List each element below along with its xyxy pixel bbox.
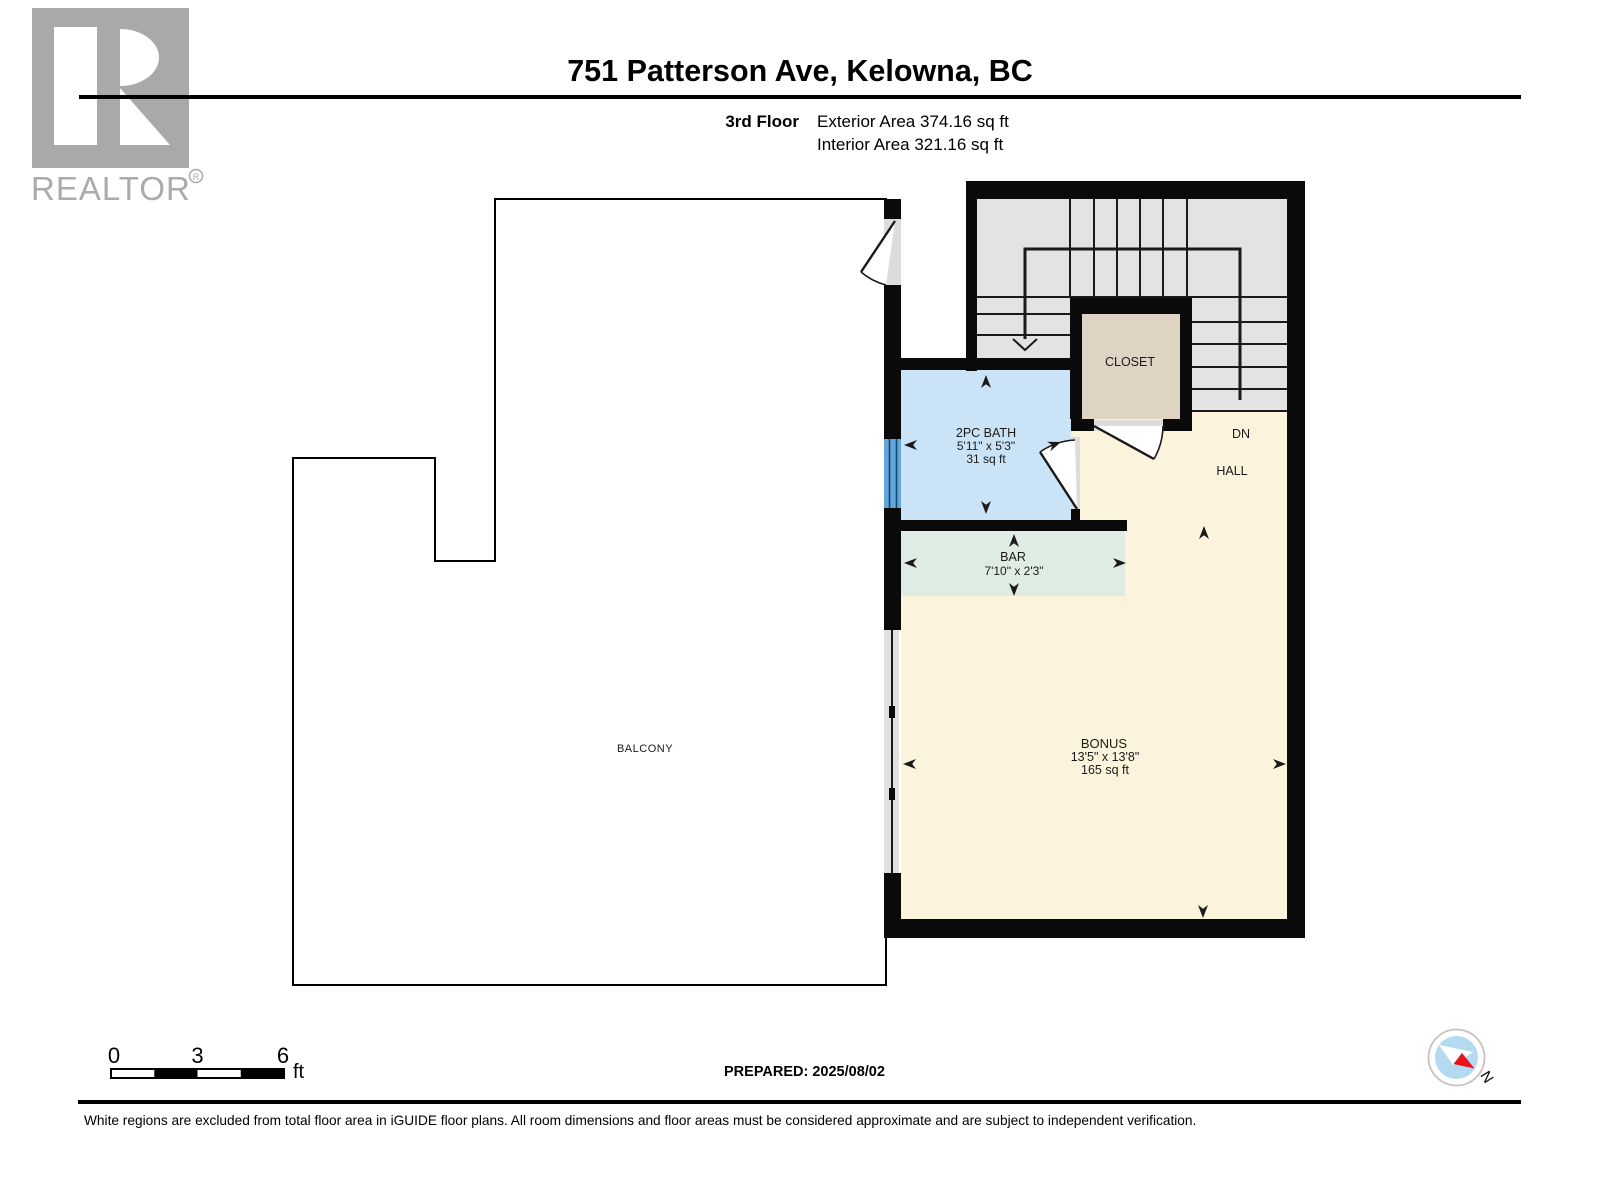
svg-text:R: R [193, 172, 200, 182]
svg-text:2PC BATH: 2PC BATH [956, 426, 1016, 440]
svg-text:7'10" x 2'3": 7'10" x 2'3" [984, 564, 1043, 578]
svg-text:DN: DN [1232, 427, 1250, 441]
svg-text:HALL: HALL [1216, 464, 1247, 478]
svg-text:ft: ft [293, 1061, 305, 1083]
svg-text:31 sq ft: 31 sq ft [966, 452, 1006, 466]
svg-text:PREPARED: 2025/08/02: PREPARED: 2025/08/02 [724, 1064, 885, 1080]
svg-text:165 sq ft: 165 sq ft [1081, 763, 1129, 777]
svg-text:6: 6 [277, 1043, 289, 1068]
svg-text:CLOSET: CLOSET [1105, 355, 1155, 369]
svg-text:5'11" x 5'3": 5'11" x 5'3" [957, 439, 1015, 453]
svg-text:BALCONY: BALCONY [617, 743, 673, 755]
svg-text:Exterior Area 374.16 sq ft: Exterior Area 374.16 sq ft [817, 112, 1009, 131]
svg-text:BONUS: BONUS [1081, 736, 1128, 751]
svg-text:3: 3 [191, 1043, 203, 1068]
svg-text:BAR: BAR [1000, 550, 1026, 564]
svg-text:3rd Floor: 3rd Floor [725, 112, 799, 131]
svg-text:13'5" x 13'8": 13'5" x 13'8" [1071, 750, 1140, 764]
svg-text:751 Patterson Ave, Kelowna, BC: 751 Patterson Ave, Kelowna, BC [567, 54, 1033, 88]
svg-text:0: 0 [108, 1043, 120, 1068]
svg-text:REALTOR: REALTOR [31, 170, 191, 207]
svg-text:White regions are excluded fro: White regions are excluded from total fl… [84, 1113, 1196, 1128]
svg-text:Interior Area 321.16 sq ft: Interior Area 321.16 sq ft [817, 135, 1003, 154]
